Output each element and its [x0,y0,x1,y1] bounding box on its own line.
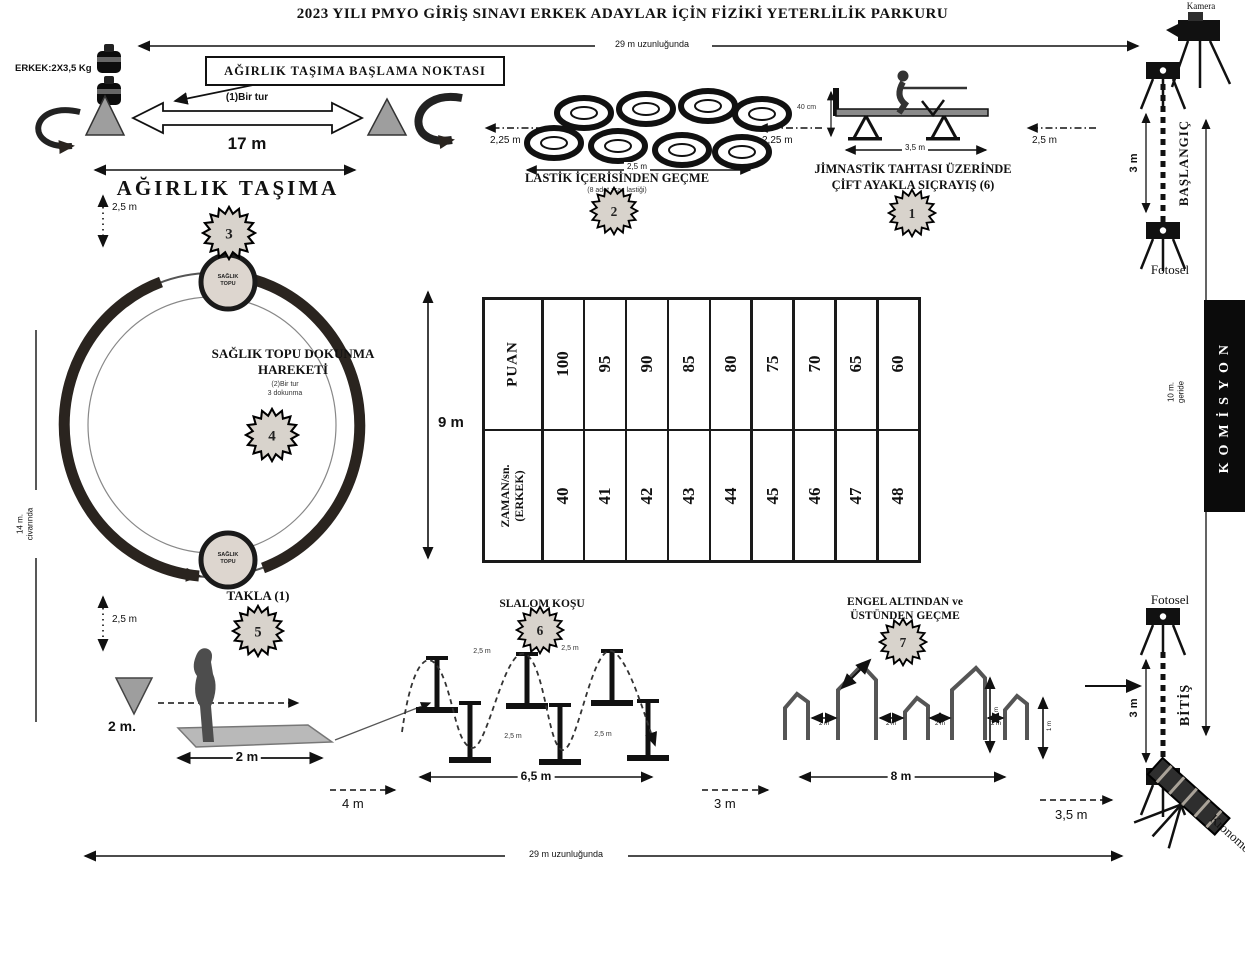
score-table-value-cell: 100 [544,300,583,429]
station-badge: 3 [201,205,257,266]
finish-gate-graphic [1085,608,1229,868]
score-table-value-cell: 40 [544,431,583,560]
dumbbell-icon [97,76,121,105]
obstacle-gap-label: 2 m [886,721,896,727]
photocell-icon [1141,608,1185,657]
dumbbell-icon [97,44,121,73]
slalom-length-label: 6,5 m [518,769,555,783]
obstacle-graphic [785,660,1112,800]
obstacle-gap-label: 2 m [935,721,945,727]
page-title: 2023 YILI PMYO GİRİŞ SINAVI ERKEK ADAYLA… [0,6,1245,23]
weight-start-box: AĞIRLIK TAŞIMA BAŞLAMA NOKTASI [205,56,505,86]
ball-label: SAĞLIKTOPU [201,274,255,287]
mat-length-label: 2 m [233,749,261,764]
start-label: BAŞLANGIÇ [1176,120,1192,206]
somersault-graphic [116,648,430,758]
score-table-value-cell: 45 [753,431,792,560]
gap-label: 2,5 m [112,614,137,625]
commission-bar: KOMİSYON [1204,300,1245,512]
score-table-value-cell: 75 [753,300,792,429]
ball-diameter-label: 9 m [438,414,464,431]
obstacle-height-label: 1 m [994,707,1000,717]
stopwatch-board-icon [1118,758,1230,868]
commission-label: KOMİSYON [1217,338,1233,473]
board-height-label: 40 cm [797,104,816,111]
tire-station-name: LASTİK İÇERİSİNDEN GEÇME [525,171,709,186]
tire-station-graphic [486,91,822,170]
svg-text:1: 1 [909,206,916,221]
top-length-label: 29 m uzunluğunda [612,39,692,49]
obstacle-length-label: 8 m [888,769,915,783]
photocell-label: Fotosel [1151,592,1189,608]
station-badge: 2 [589,186,639,241]
gap-label: 3,5 m [1055,807,1088,822]
lap-label: (1)Bir tur [226,92,268,103]
score-table-value-cell: 42 [627,431,666,560]
svg-text:5: 5 [254,624,261,640]
score-table-value-cell: 95 [585,300,624,429]
score-table-value-cell: 46 [795,431,834,560]
station-badge: 5 [231,604,285,663]
svg-text:4: 4 [268,429,276,445]
gap-label: 3 m [714,796,736,811]
cone-icon [368,99,406,135]
svg-text:2: 2 [611,204,618,219]
score-table-header-cell: ZAMAN/sn.(ERKEK) [485,431,541,560]
ball-note: 3 dokunma [268,390,303,397]
svg-text:3: 3 [225,227,232,243]
gap-label: 4 m [342,796,364,811]
bottom-length-label: 29 m uzunluğunda [526,849,606,859]
gap-label: 2,5 m [1032,135,1057,146]
obstacle-gap-label: 2 m [991,721,1001,727]
ball-station-name: HAREKETİ [258,362,328,378]
slalom-gap-label: 2,5 m [594,731,612,738]
station-badge: 6 [515,605,565,660]
tire-length-label: 2,5 m [624,162,650,171]
station-badge: 4 [244,407,300,468]
score-table-value-cell: 41 [585,431,624,560]
course-width-note: 14 m.civarında [15,508,34,540]
gap-label: 2,25 m [762,135,793,146]
ball-note: (2)Bir tur [271,381,298,388]
score-table: PUAN1009590858075706560ZAMAN/sn.(ERKEK)4… [482,297,921,563]
weight-length-label: 17 m [228,134,267,154]
commission-note: 10 m.geride [1166,381,1185,403]
slalom-gap-label: 2,5 m [473,648,491,655]
score-table-value-cell: 43 [669,431,708,560]
station-badge: 1 [887,188,937,243]
score-table-value-cell: 48 [879,431,918,560]
score-table-value-cell: 85 [669,300,708,429]
board-station-name: JİMNASTİK TAHTASI ÜZERİNDE [814,162,1011,177]
gap-label: 2,5 m [112,202,137,213]
score-table-value-cell: 70 [795,300,834,429]
slalom-gap-label: 2,5 m [504,733,522,740]
gap-label: 2,25 m [490,135,521,146]
finish-gate-width: 3 m [1128,699,1140,718]
weight-spec-label: ERKEK:2X3,5 Kg [15,63,92,74]
score-table-value-cell: 47 [837,431,876,560]
score-table-value-cell: 80 [711,300,750,429]
obstacle-height-label: 1 m [1047,721,1053,731]
score-table-header-cell: PUAN [485,300,541,429]
uturn-arrow-icon [418,97,462,141]
board-length-label: 3,5 m [902,143,928,152]
score-table-value-cell: 60 [879,300,918,429]
ball-station-name: SAĞLIK TOPU DOKUNMA [212,346,375,362]
double-arrow-outline [133,103,362,133]
station-badge: 7 [878,617,928,672]
mat [178,725,332,747]
start-gate-width: 3 m [1128,154,1140,173]
camera-label: Kamera [1187,1,1215,11]
uturn-arrow-icon [38,110,80,146]
athlete-figure [898,71,909,82]
somersault-station-name: TAKLA (1) [227,588,290,604]
score-table-value-cell: 44 [711,431,750,560]
fitness-course-diagram: 2023 YILI PMYO GİRİŞ SINAVI ERKEK ADAYLA… [0,0,1245,955]
ball-label: SAĞLIKTOPU [201,552,255,565]
cone-icon [116,678,152,714]
finish-label: BİTİŞ [1178,684,1194,726]
obstacle-station-name: ENGEL ALTINDAN ve [847,596,963,608]
photocell-label: Fotosel [1151,262,1189,278]
svg-text:7: 7 [900,635,907,650]
score-table-value-cell: 65 [837,300,876,429]
obstacle-gap-label: 2 m [819,721,829,727]
score-table-value-cell: 90 [627,300,666,429]
cone-gap-label: 2 m. [108,718,136,734]
svg-text:6: 6 [537,623,544,638]
weight-station-name: AĞIRLIK TAŞIMA [117,176,340,201]
